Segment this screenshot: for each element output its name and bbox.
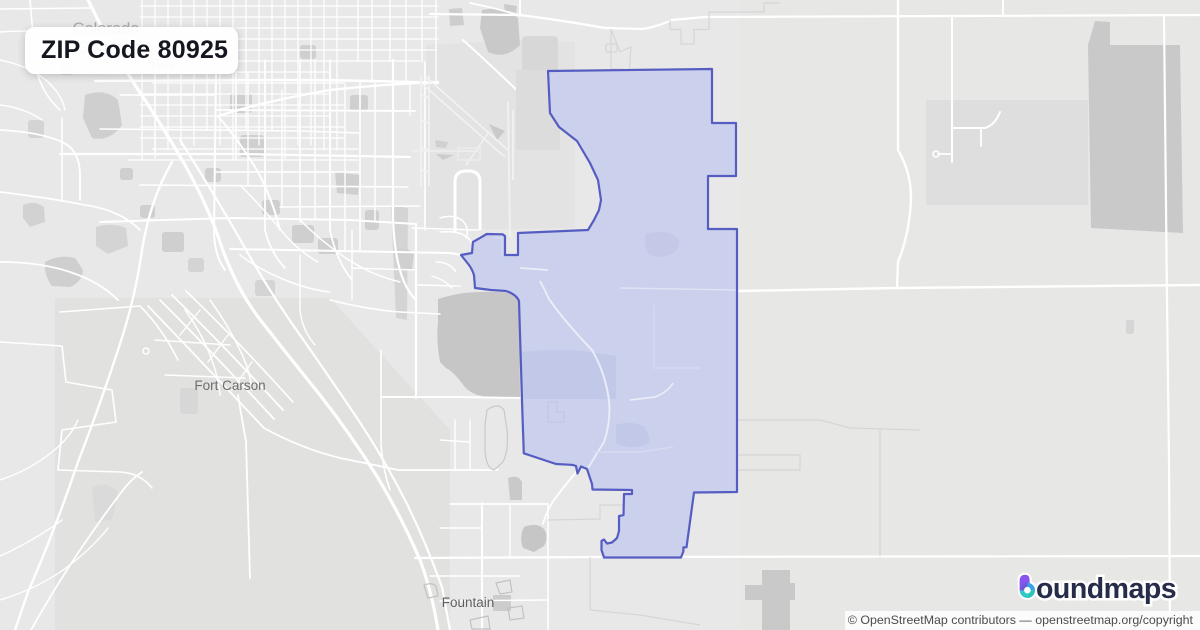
svg-text:Fort Carson: Fort Carson — [194, 378, 265, 393]
svg-text:Fountain: Fountain — [442, 595, 495, 610]
svg-text:oundmaps: oundmaps — [1036, 573, 1176, 605]
